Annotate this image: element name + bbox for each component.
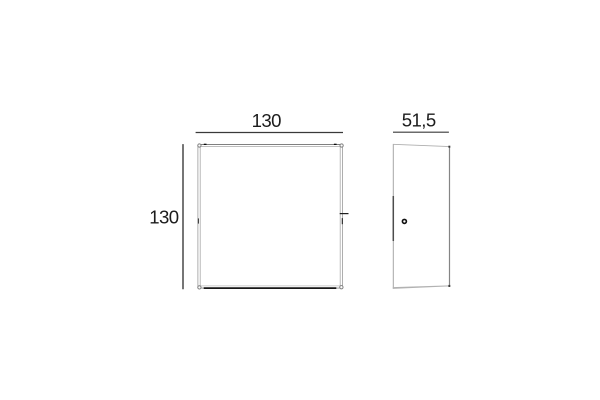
svg-text:130: 130: [252, 110, 281, 131]
svg-text:130: 130: [149, 206, 178, 227]
svg-text:51,5: 51,5: [402, 110, 436, 131]
